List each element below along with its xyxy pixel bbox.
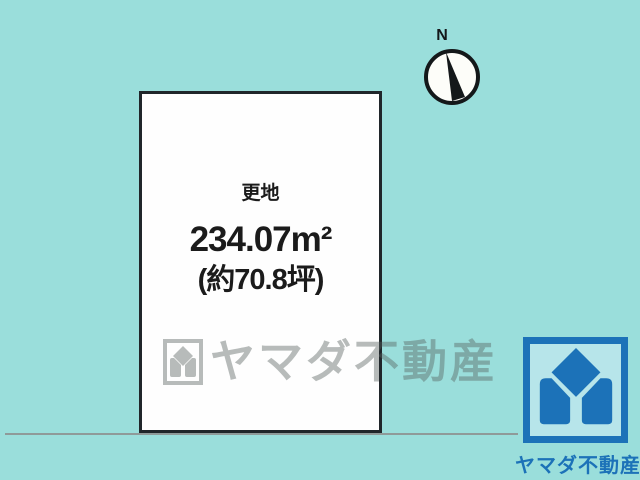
land-plot-diagram: 更地 234.07m² (約70.8坪) N ヤマダ不動産 ヤマダ不動産: [0, 0, 640, 480]
compass-north-label: N: [436, 27, 448, 44]
brand-name-text: ヤマダ不動産: [512, 449, 640, 478]
yamada-logo: [523, 337, 628, 443]
yamada-logo-mark-icon: [532, 346, 620, 434]
road-boundary-line: [5, 433, 518, 435]
north-compass-icon: N: [418, 24, 486, 108]
plot-area-tsubo: (約70.8坪): [139, 264, 382, 296]
plot-status-label: 更地: [139, 183, 382, 205]
plot-area-sqm: 234.07m²: [139, 221, 382, 259]
plot-labels: 更地 234.07m² (約70.8坪): [139, 183, 382, 296]
